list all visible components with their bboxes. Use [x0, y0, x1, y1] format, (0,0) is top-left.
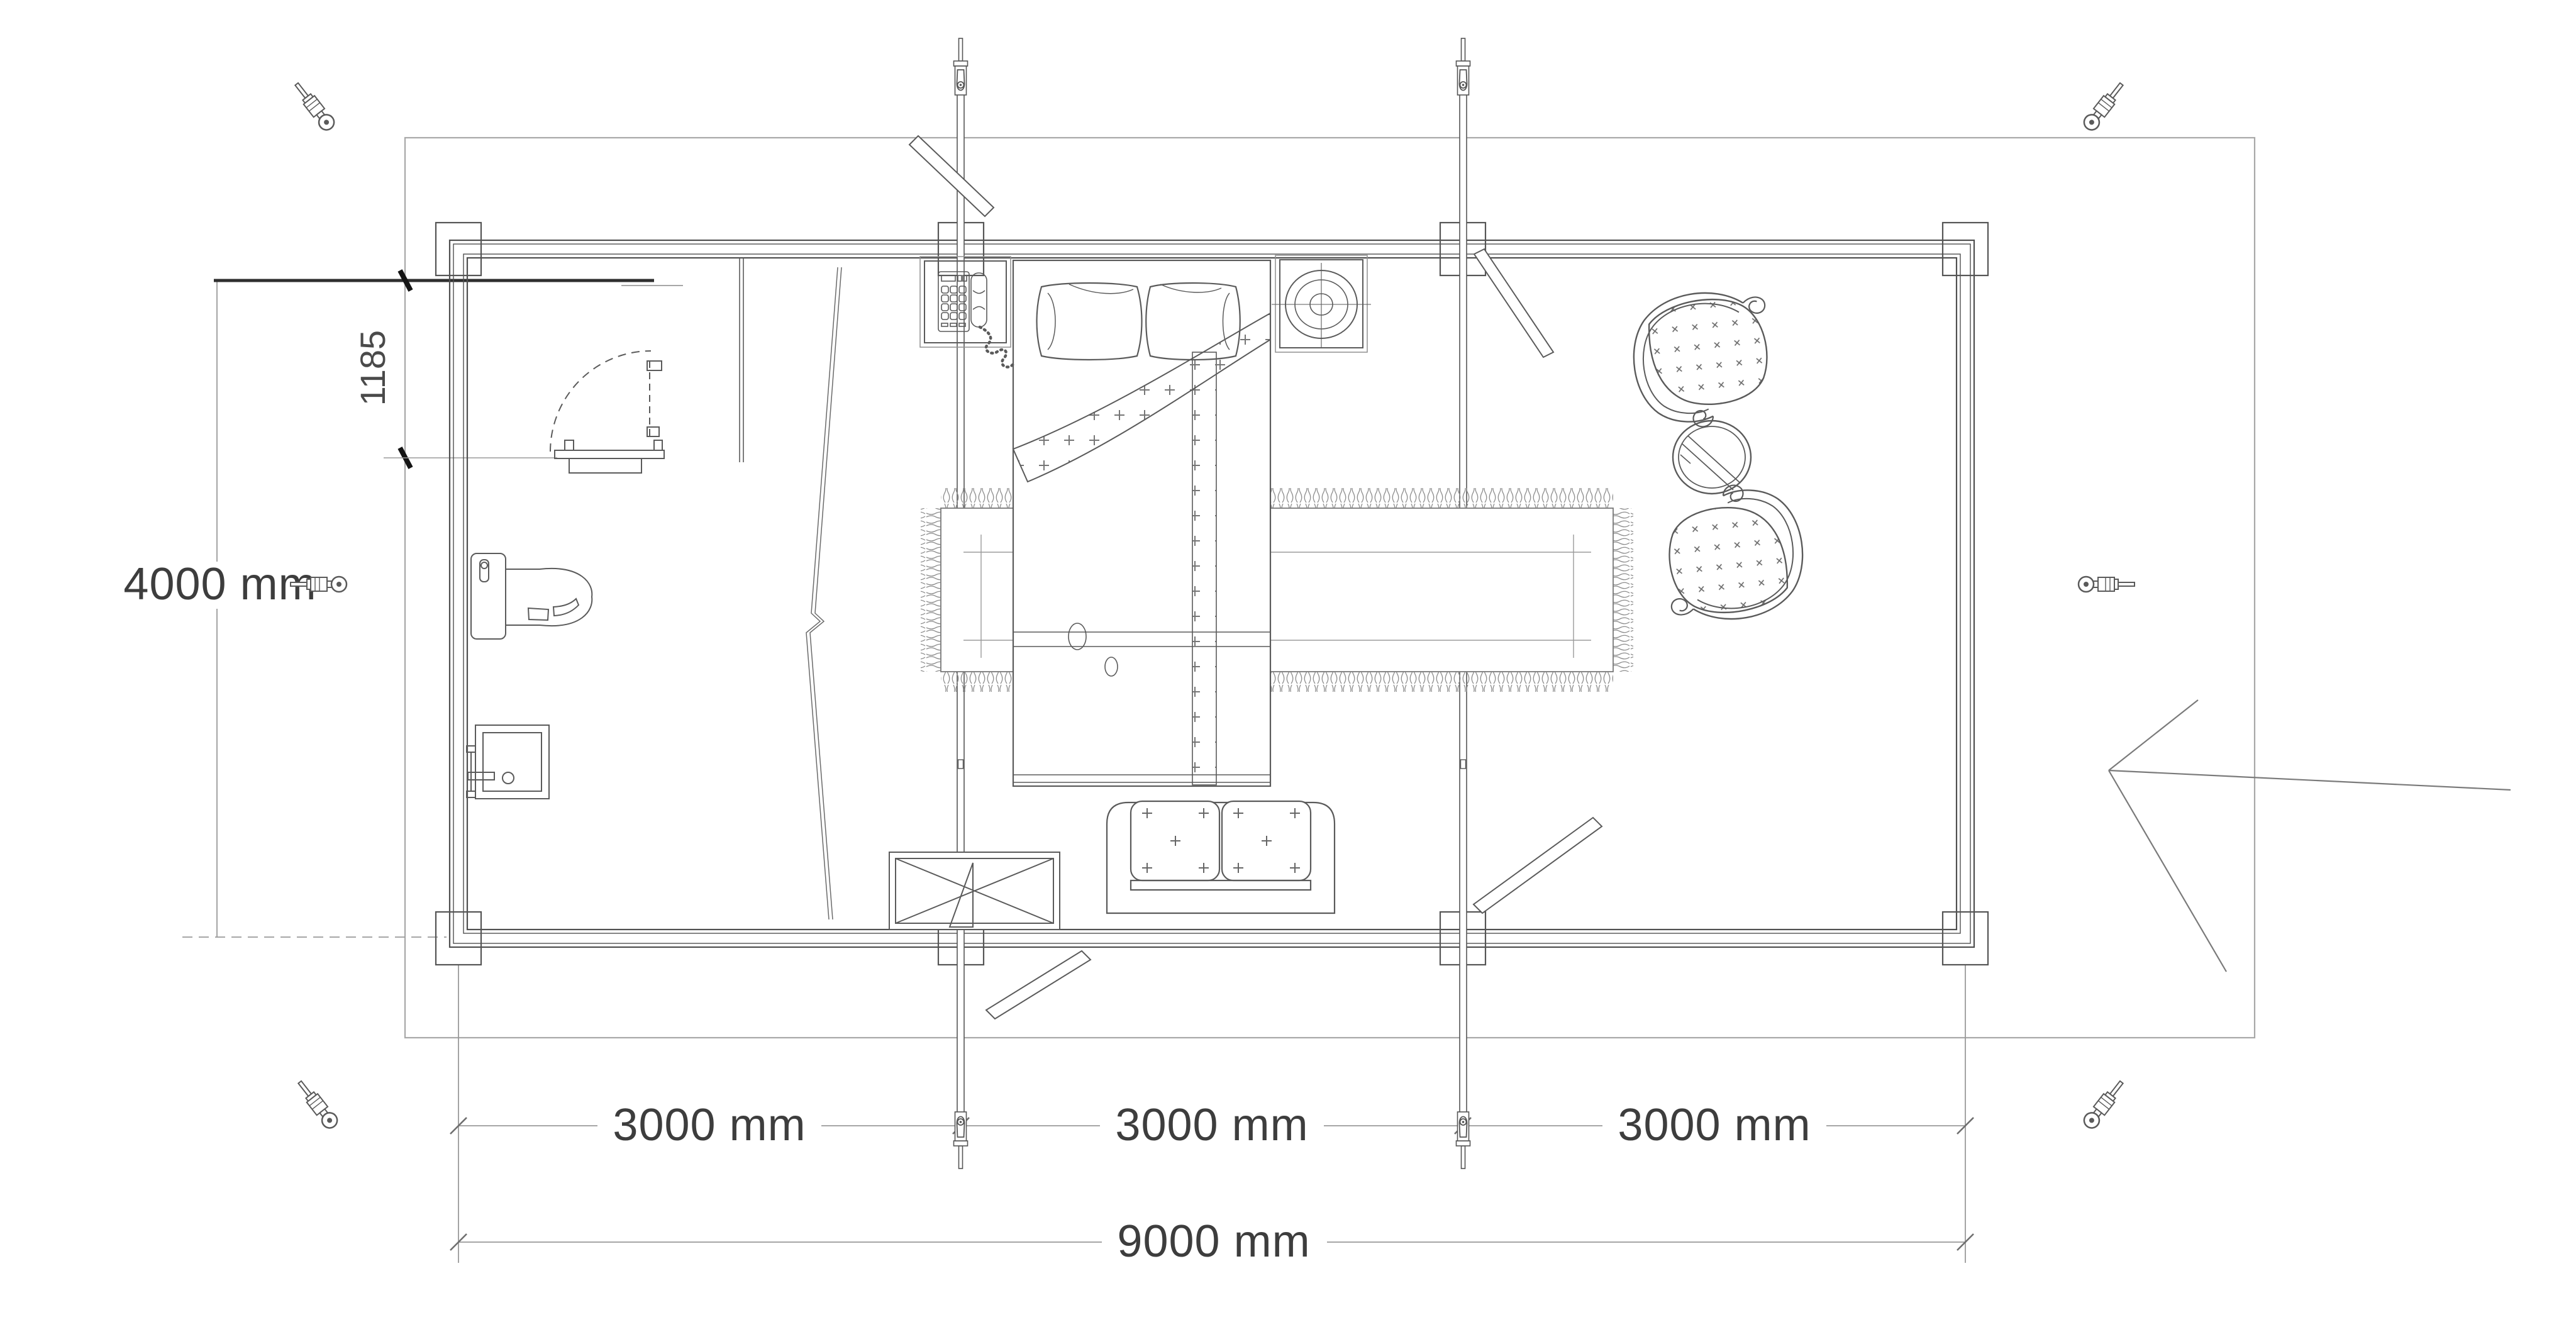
round-table [1673, 421, 1751, 494]
entry-arrow [2109, 700, 2511, 972]
blanket-strip [1192, 352, 1216, 785]
floor-plan-canvas: 4000 mm 1185 3000 mm 3000 mm 3000 mm [0, 0, 2576, 1327]
rug-fringe-right [1613, 508, 1633, 672]
telephone-handset [971, 273, 987, 327]
bay1-dimension-label: 3000 mm [613, 1100, 806, 1150]
door-offset-dimension-label: 1185 [353, 330, 392, 406]
toilet [471, 553, 592, 639]
bathroom [467, 258, 743, 799]
wing-chair-bottom [1660, 479, 1809, 625]
storm-brace-bottom-left [986, 951, 1091, 1019]
storm-brace-top-left [909, 136, 994, 216]
telephone-nightstand [920, 257, 1013, 367]
sink [467, 725, 549, 799]
coffee-table [889, 852, 1060, 930]
screw-top-left [291, 79, 337, 133]
storm-brace-bottom-right [1474, 818, 1602, 913]
bay3-dimension-label: 3000 mm [1618, 1100, 1811, 1150]
table-lamp [1272, 263, 1371, 347]
lamp-nightstand [1272, 255, 1371, 352]
storm-brace-top-right [1474, 249, 1553, 357]
rug-fringe-left [921, 508, 941, 672]
width-dimension-label: 9000 mm [1117, 1216, 1310, 1267]
break-line [806, 267, 841, 919]
bathroom-door [550, 351, 664, 473]
screw-bottom-left [294, 1077, 340, 1131]
screw-mid-right [2079, 577, 2135, 592]
height-dimension-label: 4000 mm [123, 559, 316, 609]
screw-bottom-right [2081, 1077, 2128, 1131]
telephone [938, 272, 1013, 367]
sitting-area [1628, 286, 1809, 625]
bed [1013, 260, 1270, 786]
bay2-dimension-label: 3000 mm [1115, 1100, 1308, 1150]
screw-top-right [2081, 79, 2128, 133]
drawing-sheet: 4000 mm 1185 3000 mm 3000 mm 3000 mm [0, 0, 2576, 1327]
wing-chair-top [1628, 286, 1777, 433]
sofa [1107, 801, 1335, 913]
door-swing-arc [550, 351, 651, 452]
